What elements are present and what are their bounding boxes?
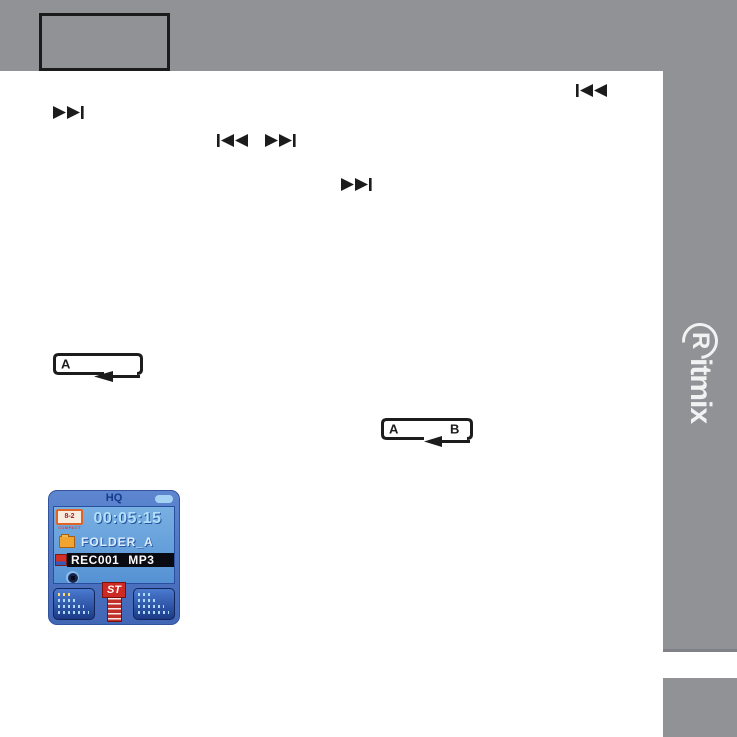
svg-text:B: B xyxy=(450,422,459,437)
repeat-ab-icon: A B xyxy=(380,417,474,447)
quality-label: HQ xyxy=(106,492,123,504)
battery-icon xyxy=(155,495,173,503)
prev-next-icons xyxy=(217,134,296,147)
next-track-icon-2 xyxy=(338,178,372,191)
player-status-bar: HQ xyxy=(49,491,179,506)
time-display: 00:05:15 xyxy=(83,509,172,528)
prev-track-icon xyxy=(576,84,610,97)
folder-name: FOLDER_A xyxy=(81,535,154,549)
recorder-brand-icon: 8-2 COMPACT xyxy=(56,509,83,530)
brand-logo: R itmix xyxy=(663,288,737,458)
svg-text:A: A xyxy=(389,422,399,437)
time-row: 8-2 COMPACT 00:05:15 xyxy=(54,507,174,530)
header-box xyxy=(39,13,170,71)
repeat-a-icon: A xyxy=(52,352,144,382)
footer-block xyxy=(663,678,737,737)
stop-icon xyxy=(66,571,79,584)
next-track-icon xyxy=(50,106,84,119)
folder-icon xyxy=(59,536,75,548)
vu-meter-section: ST xyxy=(53,586,175,619)
stereo-indicator: ST xyxy=(102,582,126,622)
player-display: 8-2 COMPACT 00:05:15 FOLDER_A REC001 MP3 xyxy=(53,506,175,584)
stereo-banner-icon xyxy=(107,598,122,622)
file-row: REC001 MP3 xyxy=(54,553,174,567)
vu-meter-right xyxy=(133,588,175,620)
svg-text:A: A xyxy=(61,357,71,372)
filename-strip: REC001 MP3 xyxy=(67,553,174,567)
stereo-badge: ST xyxy=(102,582,126,598)
vu-meter-left xyxy=(53,588,95,620)
brand-logo-text: R itmix xyxy=(682,323,718,423)
ab-mini-icon xyxy=(55,554,67,566)
manual-page: R itmix xyxy=(0,0,737,737)
folder-row: FOLDER_A xyxy=(54,530,174,549)
player-screenshot: HQ 8-2 COMPACT 00:05:15 FOLDER_A REC001 … xyxy=(48,490,180,625)
